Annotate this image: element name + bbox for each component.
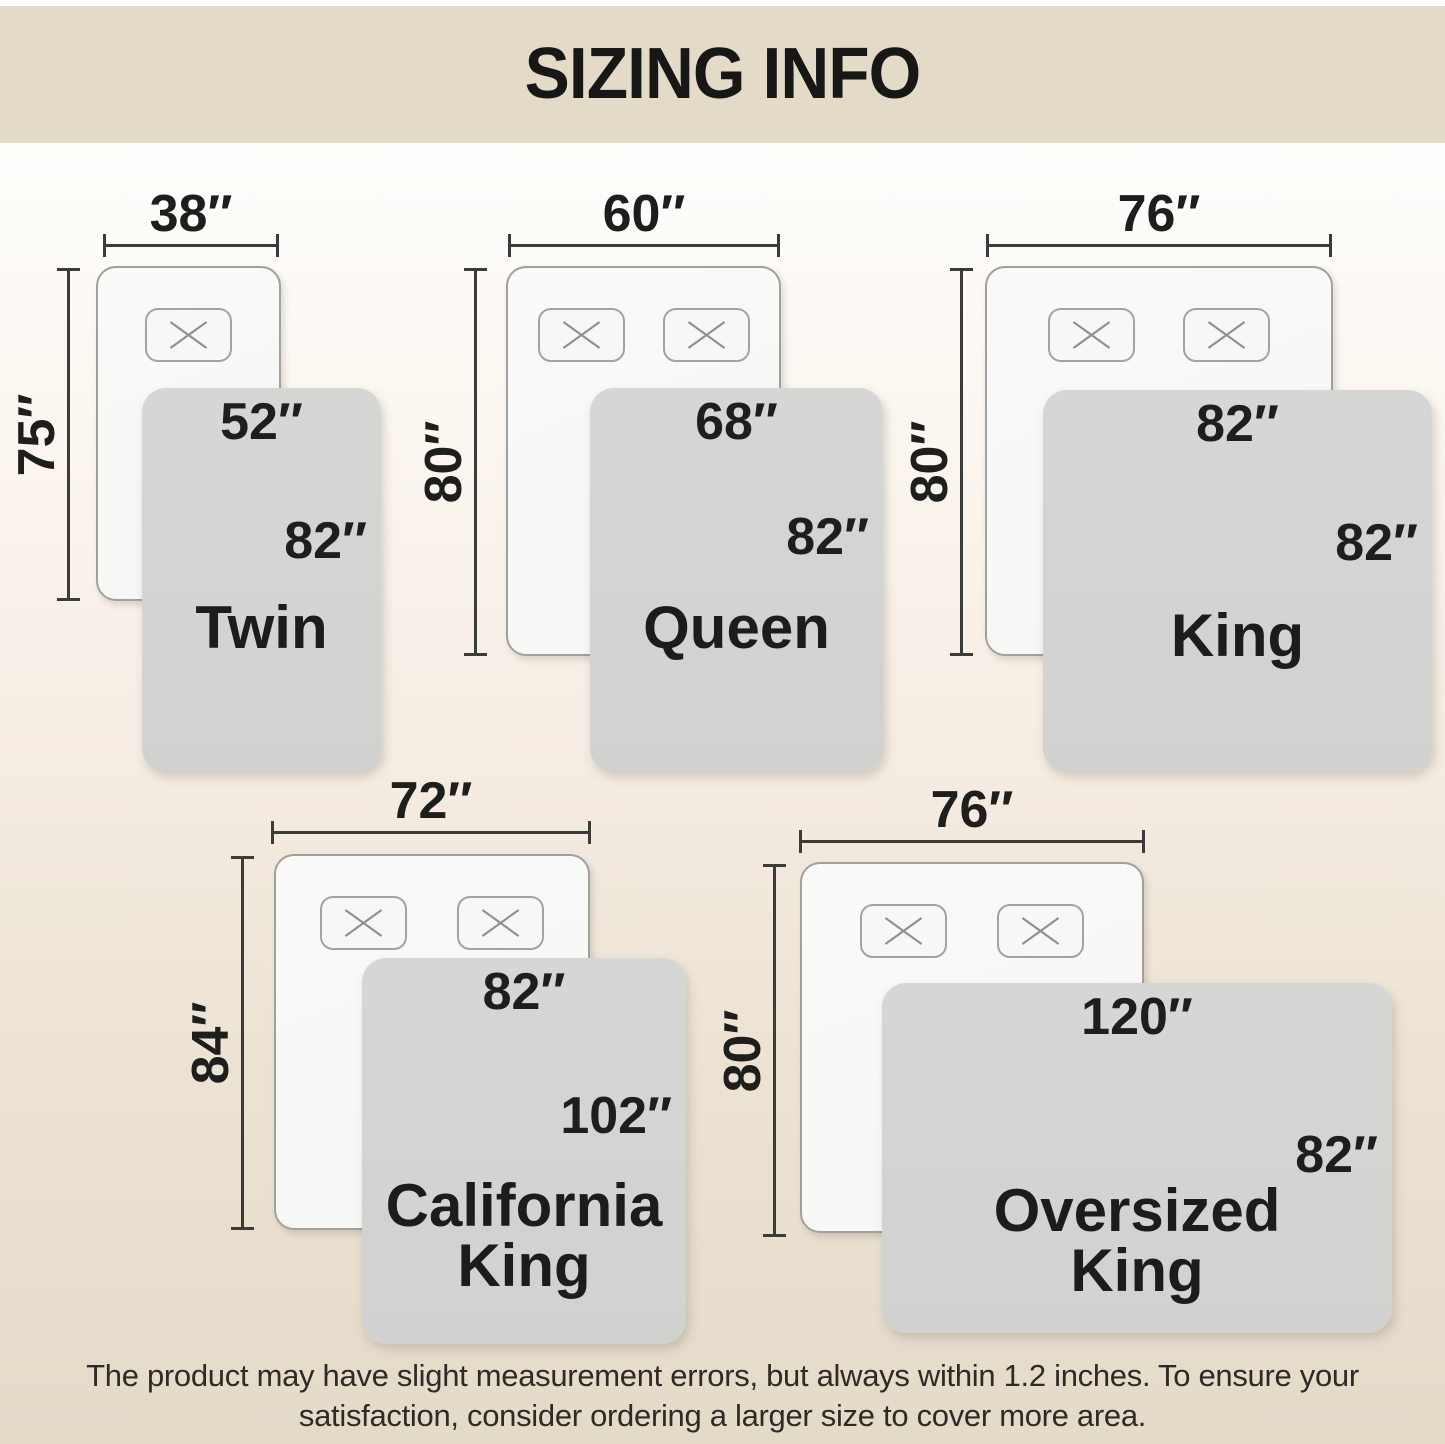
diagram-background [0, 143, 1445, 1444]
page-title: SIZING INFO [43, 6, 1401, 143]
title-banner: SIZING INFO [0, 6, 1445, 143]
disclaimer-text: The product may have slight measurement … [0, 1356, 1445, 1436]
disclaimer-line2: satisfaction, consider ordering a larger… [0, 1396, 1445, 1436]
sizing-info-infographic: SIZING INFO 38″ 75″ 52″ 82″ Twin 60″ [0, 0, 1445, 1444]
disclaimer-line1: The product may have slight measurement … [0, 1356, 1445, 1396]
